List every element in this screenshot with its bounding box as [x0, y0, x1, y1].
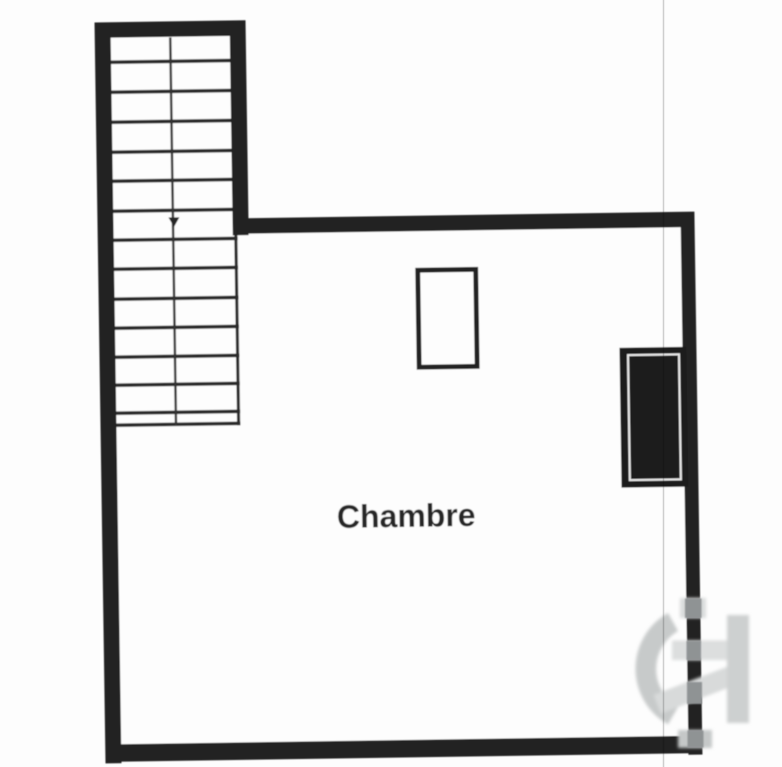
svg-text:Chambre: Chambre [337, 497, 476, 535]
